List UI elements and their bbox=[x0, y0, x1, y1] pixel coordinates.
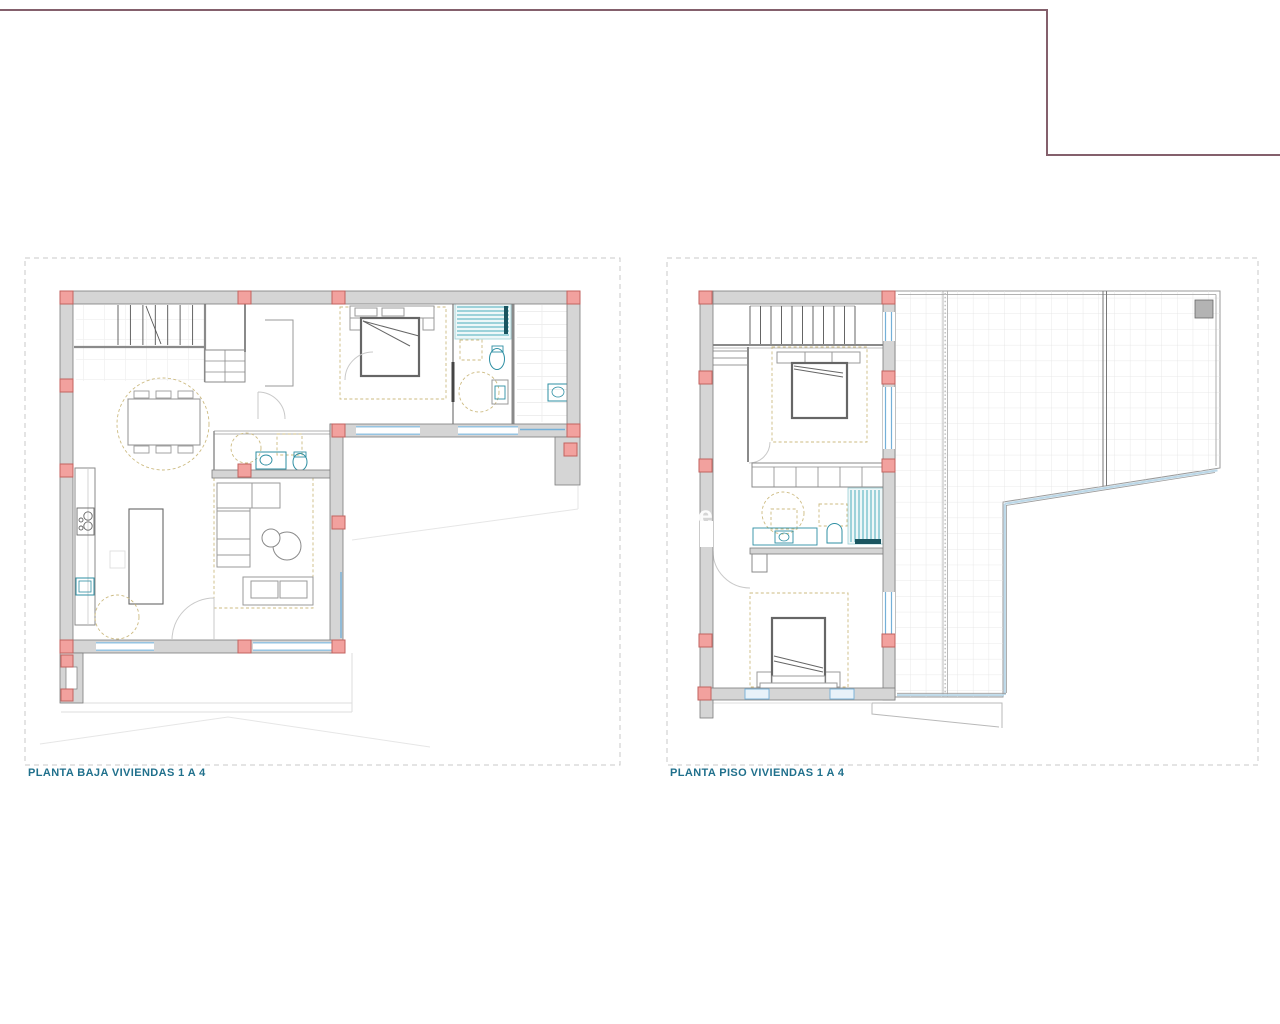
drawing-sheet: PLANTA BAJA VIVIENDAS 1 A 4 bbox=[0, 0, 1280, 1024]
vanity-icon bbox=[492, 380, 508, 404]
kitchen bbox=[75, 468, 163, 639]
entry-canopy bbox=[872, 703, 1002, 728]
double-bed bbox=[350, 306, 434, 376]
corner-sofa bbox=[217, 483, 280, 567]
site-boundary-line bbox=[0, 10, 1280, 155]
kitchen-counter bbox=[75, 468, 95, 625]
first-floor-plan: ie PLANTA PISO VIVIENDAS 1 A 4 bbox=[667, 258, 1258, 779]
floor-plan-drawing: PLANTA BAJA VIVIENDAS 1 A 4 bbox=[0, 0, 1280, 1024]
shower-icon bbox=[455, 303, 511, 339]
guest-bathroom bbox=[212, 431, 337, 478]
two-seat-sofa bbox=[243, 577, 313, 605]
en-suite-bathroom bbox=[455, 303, 513, 424]
ground-floor-plan: PLANTA BAJA VIVIENDAS 1 A 4 bbox=[25, 258, 620, 779]
double-bed bbox=[757, 618, 840, 689]
first-floor-label: PLANTA PISO VIVIENDAS 1 A 4 bbox=[670, 767, 845, 779]
bathroom bbox=[713, 488, 895, 588]
ground-floor-label: PLANTA BAJA VIVIENDAS 1 A 4 bbox=[28, 767, 206, 779]
dining-table bbox=[117, 378, 209, 470]
chimney bbox=[1195, 300, 1213, 318]
bedroom-1 bbox=[748, 347, 867, 463]
double-bed bbox=[777, 352, 860, 418]
kitchen-island bbox=[129, 509, 163, 604]
shower-icon bbox=[848, 488, 883, 544]
vanity-counter bbox=[753, 528, 817, 545]
bedroom-2 bbox=[750, 593, 848, 689]
hall-floor-tiles bbox=[76, 305, 204, 381]
toilet-icon bbox=[827, 524, 842, 544]
breakfast-table bbox=[95, 595, 139, 639]
watermark-text: ie bbox=[691, 500, 713, 530]
bedroom bbox=[340, 304, 455, 424]
ground-lines bbox=[40, 486, 578, 747]
toilet-icon bbox=[490, 346, 505, 370]
toilet-icon bbox=[293, 452, 307, 471]
living-room bbox=[214, 474, 313, 608]
wardrobe bbox=[752, 463, 885, 487]
